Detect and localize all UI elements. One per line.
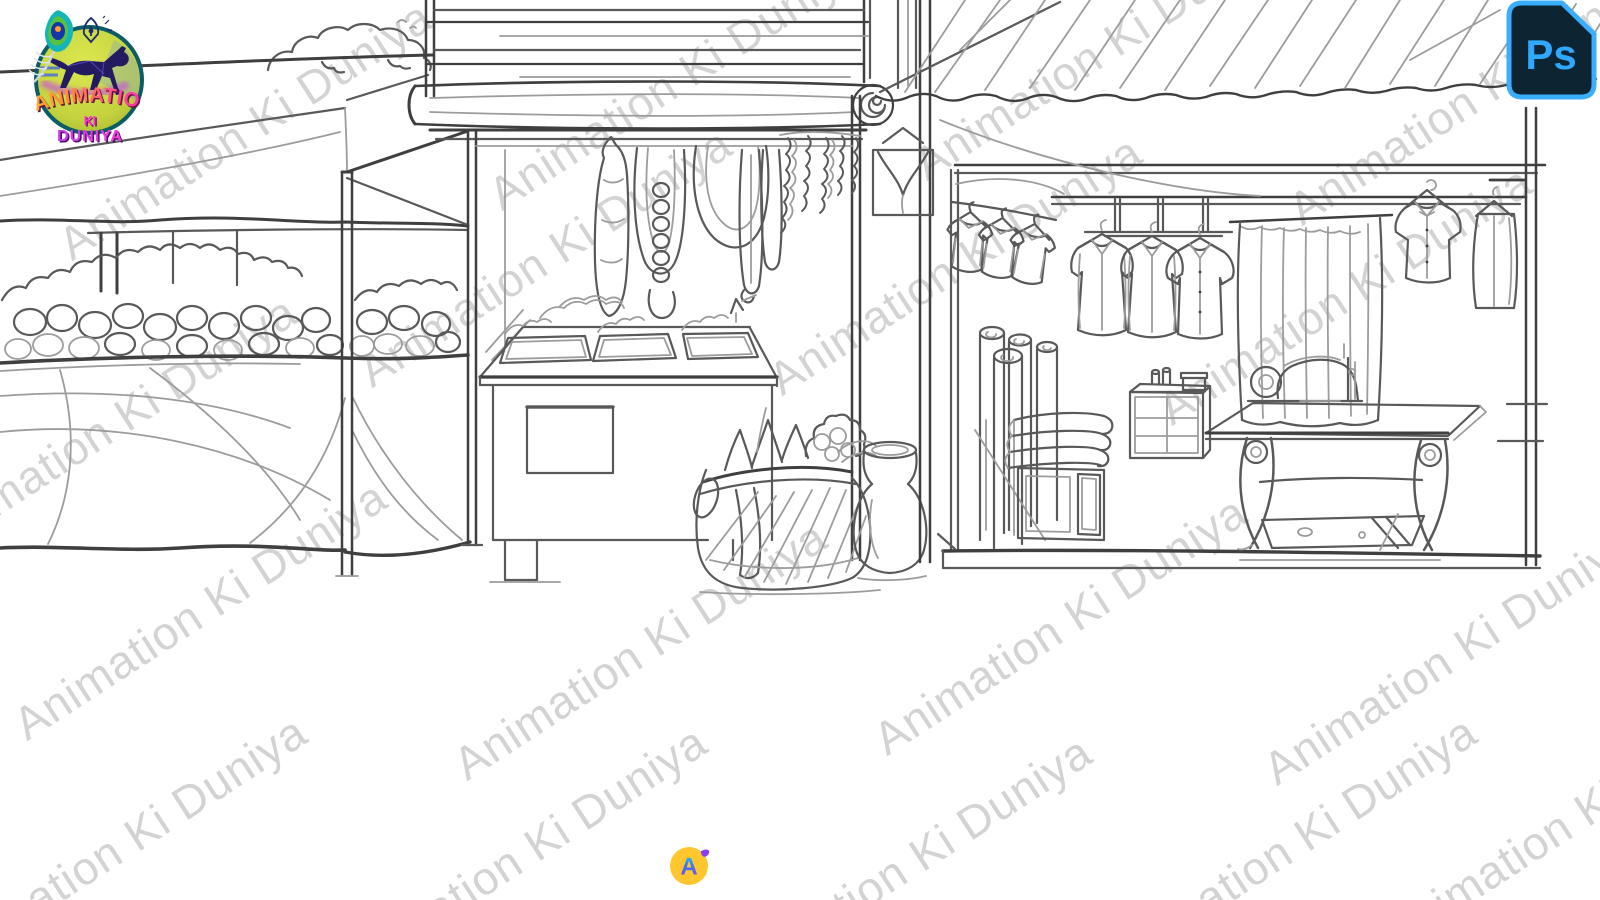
artwork-canvas: Animation Ki DuniyaAnimation Ki DuniyaAn… (0, 0, 1600, 900)
hanging-strings (101, 230, 237, 293)
pillar-sign (873, 128, 933, 215)
long-shirt-rack (1071, 220, 1233, 339)
photoshop-badge: Ps (1506, 0, 1600, 117)
rolled-shutter (409, 0, 893, 139)
tree-foliage (268, 20, 431, 73)
support-pole (336, 172, 358, 576)
hanging-towel (1473, 187, 1517, 308)
bottom-logo-badge: A (668, 844, 714, 893)
channel-logo: ANIMATION ANIMATION KI KI DUNIYA DUNIYA (6, 4, 171, 164)
tin-roof (876, 0, 1600, 101)
produce-piles (2, 244, 460, 360)
hanging-shirt (1395, 180, 1460, 282)
draped-table-cloth (0, 355, 470, 555)
pillar (898, 0, 930, 562)
photoshop-label: Ps (1525, 31, 1576, 78)
curtain (1230, 215, 1392, 426)
sewing-machine (1248, 344, 1362, 401)
hanging-garlands (595, 137, 782, 318)
logo-title-bottom: DUNIYA (57, 128, 123, 145)
market-sketch (0, 0, 1600, 900)
clay-pot (854, 442, 927, 580)
fabric-rolls (975, 327, 1057, 548)
sewing-table (1206, 403, 1486, 560)
badge-letter: A (680, 854, 697, 881)
display-case (1130, 368, 1210, 458)
small-shirt-rack (943, 179, 1064, 287)
leaf-garland-strands (780, 132, 860, 233)
food-counter (480, 327, 777, 582)
logo-title-mid: KI (84, 114, 97, 128)
food-trays (500, 296, 758, 363)
